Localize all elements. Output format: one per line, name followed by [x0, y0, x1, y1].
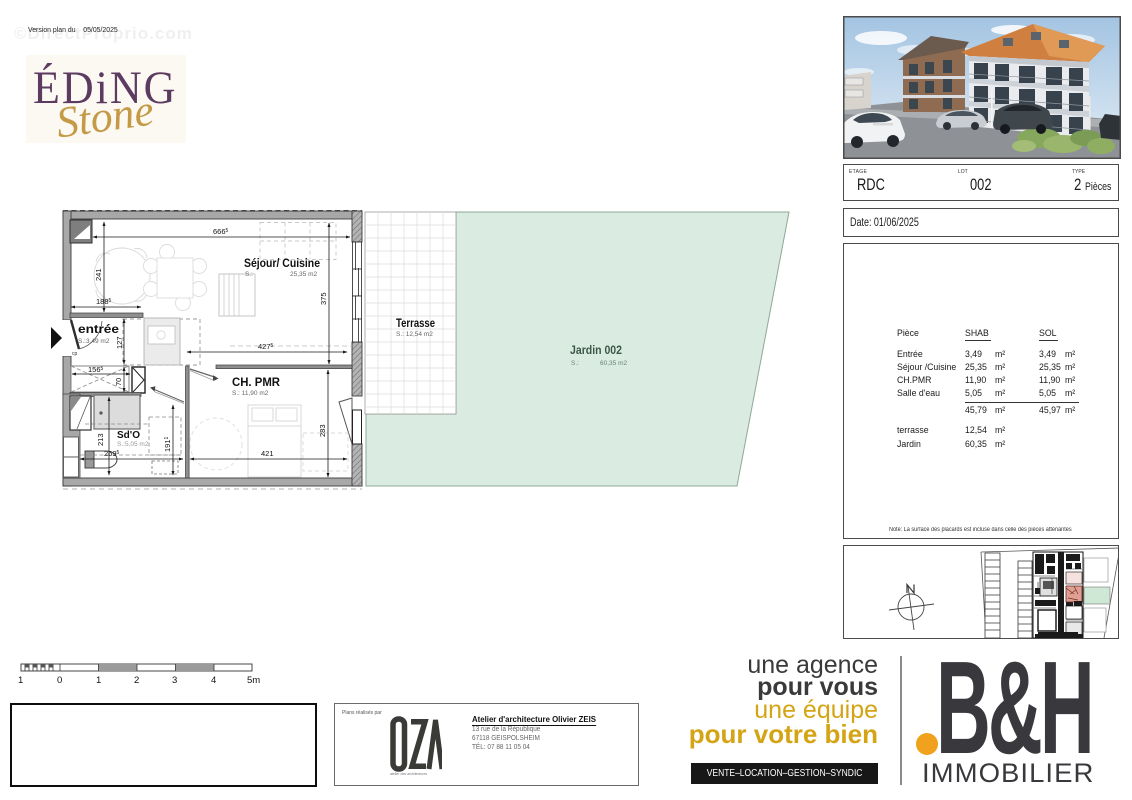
svg-text:cp: cp: [72, 351, 78, 357]
svg-text:241: 241: [94, 268, 103, 281]
svg-text:375: 375: [319, 292, 328, 305]
svg-text:25,35 m2: 25,35 m2: [290, 271, 317, 278]
svg-text:Terrasse: Terrasse: [396, 318, 435, 330]
svg-text:Jardin 002: Jardin 002: [570, 345, 622, 357]
svg-text:5m: 5m: [247, 675, 260, 686]
svg-text:4: 4: [211, 675, 216, 686]
svg-text:S.:: S.:: [245, 271, 253, 278]
svg-text:S.:: S.:: [571, 360, 579, 367]
svg-text:60,35 m2: 60,35 m2: [600, 360, 627, 367]
svg-text:S.:3,49 m2: S.:3,49 m2: [78, 338, 110, 345]
svg-text:1: 1: [18, 675, 23, 686]
svg-text:entrée: entrée: [78, 324, 119, 336]
svg-text:S.: 11,90 m2: S.: 11,90 m2: [232, 390, 269, 397]
svg-text:213: 213: [96, 433, 105, 446]
svg-text:3: 3: [172, 675, 177, 686]
svg-text:2: 2: [134, 675, 139, 686]
svg-text:127: 127: [115, 336, 124, 349]
svg-text:283: 283: [318, 424, 327, 437]
svg-text:S.:5,05 m2: S.:5,05 m2: [117, 441, 149, 448]
svg-text:0: 0: [57, 675, 62, 686]
svg-text:Sd'O: Sd'O: [117, 429, 140, 441]
svg-text:1: 1: [96, 675, 101, 686]
svg-text:S.: 12,54 m2: S.: 12,54 m2: [396, 331, 433, 338]
svg-text:CH. PMR: CH. PMR: [232, 377, 281, 389]
svg-text:421: 421: [261, 449, 274, 458]
svg-text:Séjour/ Cuisine: Séjour/ Cuisine: [244, 258, 320, 270]
svg-text:70: 70: [114, 378, 123, 386]
